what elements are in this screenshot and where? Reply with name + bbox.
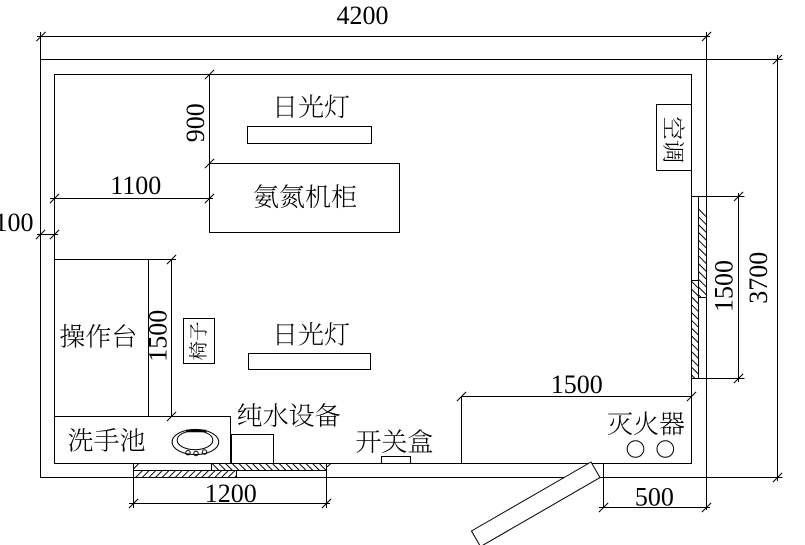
svg-text:1500: 1500 — [144, 310, 173, 362]
svg-text:4200: 4200 — [337, 1, 389, 30]
svg-text:1500: 1500 — [709, 260, 738, 312]
svg-text:500: 500 — [635, 482, 674, 511]
svg-text:1100: 1100 — [110, 171, 161, 200]
svg-text:3700: 3700 — [744, 252, 773, 304]
svg-text:1200: 1200 — [205, 479, 257, 508]
svg-text:1500: 1500 — [551, 370, 603, 399]
svg-text:100: 100 — [0, 208, 34, 237]
svg-text:900: 900 — [181, 103, 210, 142]
